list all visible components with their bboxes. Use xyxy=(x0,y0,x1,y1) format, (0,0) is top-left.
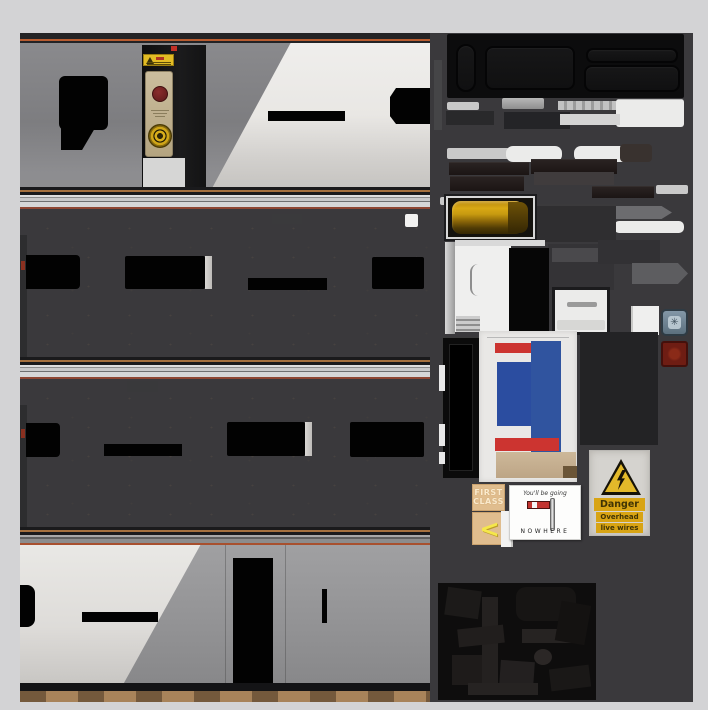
brake-equipment-panel xyxy=(142,45,206,191)
plate-text-line xyxy=(153,113,167,114)
recessed-bar xyxy=(586,48,678,63)
solebar-tan-line xyxy=(20,530,430,532)
machinery-shape xyxy=(452,655,482,685)
solebar-band xyxy=(20,683,430,691)
trim-bar xyxy=(447,102,479,110)
sticker-text-line xyxy=(147,64,171,65)
machinery-shape xyxy=(444,587,482,619)
brake-valve-plate xyxy=(145,71,173,157)
roofline-orange-stripe xyxy=(20,39,430,41)
frame-side-mark xyxy=(439,452,445,464)
door-frame-line xyxy=(285,545,286,693)
interior-door-assembly xyxy=(445,240,550,335)
dark-plank xyxy=(449,162,529,175)
car-end-edge xyxy=(20,235,27,357)
recessed-rect xyxy=(584,65,680,92)
dark-panel xyxy=(598,240,660,264)
door-window-black xyxy=(509,248,549,332)
door-frame-line xyxy=(225,545,226,693)
window xyxy=(26,423,60,457)
arrow-panel xyxy=(632,263,688,284)
black-window-frame xyxy=(442,337,480,478)
brake-button-red xyxy=(152,86,168,102)
indicator-lamp-red xyxy=(171,46,177,51)
destination-box xyxy=(127,381,158,392)
card-top-line xyxy=(487,337,569,338)
warning-sticker xyxy=(143,54,174,66)
underframe-texture xyxy=(438,583,596,700)
signal-pole-drawing xyxy=(550,498,555,531)
dark-panel xyxy=(536,204,616,242)
door-close-button xyxy=(661,341,688,367)
machinery-circle xyxy=(534,649,552,665)
danger-line1: Overhead xyxy=(596,512,643,522)
destination-box xyxy=(272,214,302,224)
window xyxy=(350,422,424,457)
first-class-line1: FIRST xyxy=(474,488,502,497)
door-edge-silver xyxy=(445,242,455,334)
window-slot xyxy=(248,278,327,290)
window-pillar-bevel xyxy=(305,422,312,456)
window xyxy=(372,257,424,289)
door-handle-recess xyxy=(470,264,481,296)
texture-atlas-page: ✳ FIRST CLASS < You'll be going xyxy=(0,0,708,710)
door-open-button-icon: ✳ xyxy=(668,316,681,329)
machinery-shape xyxy=(468,683,538,695)
door-opening xyxy=(233,558,273,683)
window xyxy=(125,256,205,289)
sticker-text-line xyxy=(147,62,171,63)
danger-sign: Danger Overhead live wires xyxy=(589,450,650,536)
signal-arm-drawing xyxy=(527,501,550,509)
solebar-tan-line xyxy=(20,190,430,192)
signal-arm-stripe xyxy=(532,502,537,508)
recessed-white-tray xyxy=(552,287,610,335)
ribbed-bar xyxy=(558,101,620,110)
red-stripe-bottom xyxy=(495,438,559,451)
door-step-treads xyxy=(456,316,480,332)
dark-fitting xyxy=(446,111,494,125)
edge-red-mark xyxy=(21,261,25,270)
texture-atlas: ✳ FIRST CLASS < You'll be going xyxy=(20,33,693,702)
roofline-band xyxy=(20,33,430,43)
window xyxy=(26,255,80,289)
carside-strip-cab xyxy=(20,33,430,195)
cantrail-silver-band xyxy=(20,365,430,377)
carside-strip-door xyxy=(20,535,430,702)
door-open-button: ✳ xyxy=(661,309,688,336)
black-gloss-panel xyxy=(447,34,684,98)
tray-lip xyxy=(557,320,605,330)
end-cutout xyxy=(20,585,35,627)
solebar-tan-line xyxy=(20,360,430,362)
first-class-sign: FIRST CLASS xyxy=(472,484,505,511)
white-bar xyxy=(614,221,684,233)
handle-end-cap xyxy=(620,144,652,162)
trim-bar xyxy=(656,185,688,194)
tray-handle xyxy=(567,302,597,307)
first-class-line2: CLASS xyxy=(473,497,504,506)
cantrail-silver-band xyxy=(20,195,430,207)
dark-plank xyxy=(534,172,614,185)
trim-bar xyxy=(447,148,509,159)
danger-line2: live wires xyxy=(596,523,643,533)
dark-plank xyxy=(592,186,654,198)
cantrail-silver-band xyxy=(20,535,430,543)
white-plate xyxy=(616,99,684,127)
window xyxy=(227,422,305,456)
sticker-red-text-block xyxy=(156,57,164,60)
amber-handle-dark-end xyxy=(508,202,528,233)
nowhere-sign-top-text: You'll be going xyxy=(510,490,580,497)
window-slot xyxy=(104,444,182,456)
trim-bar xyxy=(560,114,620,125)
door-slit xyxy=(322,589,327,623)
plate-text-line xyxy=(151,110,169,111)
nowhere-sign: You'll be going NOWHERE xyxy=(509,485,581,540)
black-window-glass xyxy=(449,344,473,471)
window-slot xyxy=(82,612,158,622)
plate-text-line xyxy=(155,116,165,117)
brake-valve-wheel-icon xyxy=(148,124,172,148)
dark-plank xyxy=(450,176,524,191)
window-pillar-bevel xyxy=(205,256,212,289)
edge-red-mark xyxy=(21,429,25,438)
panel-grey-plate xyxy=(143,158,185,188)
cab-corner-cutout xyxy=(390,88,430,124)
cab-door-window xyxy=(59,76,108,130)
roof-tab xyxy=(405,214,418,227)
carside-strip-3 xyxy=(20,365,430,535)
frame-side-mark xyxy=(439,365,445,391)
carside-strip-2 xyxy=(20,195,430,365)
danger-title: Danger xyxy=(594,498,645,511)
brown-corner xyxy=(563,466,577,478)
trim-bar xyxy=(502,98,544,109)
edge-smudge xyxy=(434,60,442,130)
frame-side-mark xyxy=(439,424,445,446)
nowhere-sign-bottom-text: NOWHERE xyxy=(510,528,580,535)
underframe-tan-band xyxy=(20,691,430,702)
recessed-pill xyxy=(456,44,476,92)
machinery-shape xyxy=(555,601,591,646)
machinery-shape xyxy=(549,665,591,692)
livery-door-card xyxy=(479,331,577,482)
cab-vent-slot xyxy=(268,111,345,121)
amber-handle-frame xyxy=(446,196,535,239)
car-body xyxy=(20,209,430,357)
recessed-rect xyxy=(485,46,575,90)
white-plate-small xyxy=(631,306,659,335)
arrow-trim-bar xyxy=(614,206,672,219)
large-dark-panel xyxy=(580,332,658,445)
